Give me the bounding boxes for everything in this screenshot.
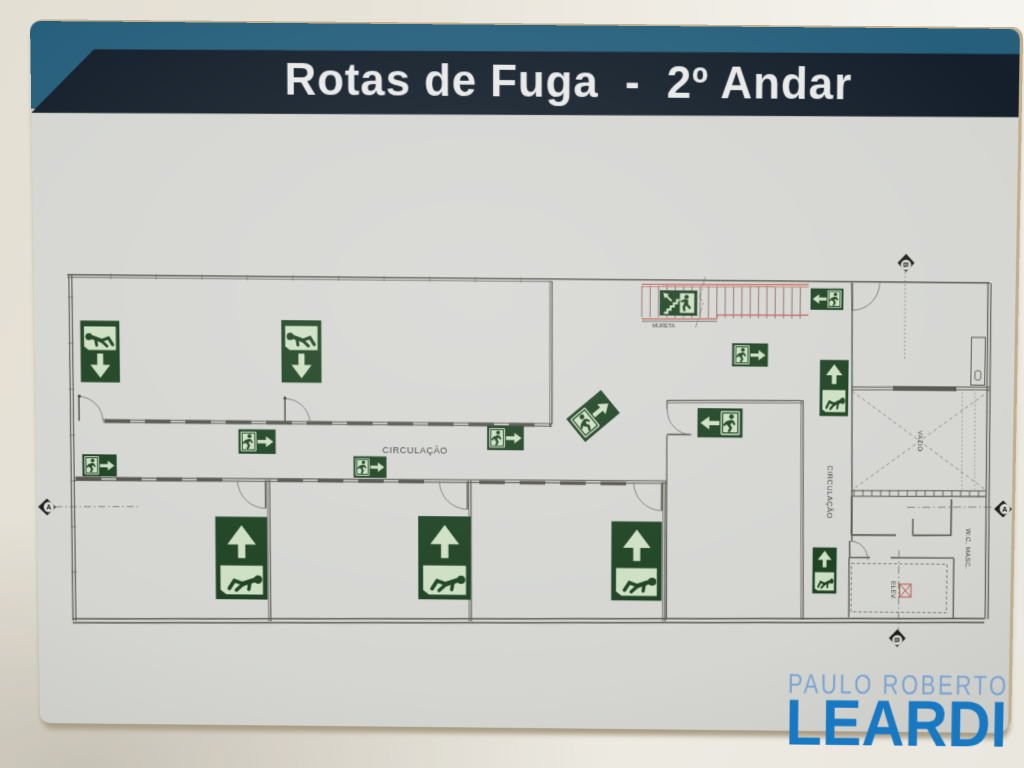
- svg-text:ELEV.: ELEV.: [889, 581, 896, 600]
- svg-text:CIRCULAÇÃO: CIRCULAÇÃO: [382, 446, 447, 456]
- svg-text:CIRCULAÇÃO: CIRCULAÇÃO: [825, 465, 834, 518]
- svg-text:B: B: [901, 262, 910, 267]
- svg-text:B: B: [893, 637, 902, 642]
- svg-text:MURETA: MURETA: [652, 324, 675, 330]
- svg-text:A: A: [1002, 505, 1008, 514]
- svg-text:W.C. MASC.: W.C. MASC.: [963, 529, 970, 570]
- svg-text:A: A: [46, 503, 52, 512]
- svg-text:VAZIO: VAZIO: [916, 430, 923, 451]
